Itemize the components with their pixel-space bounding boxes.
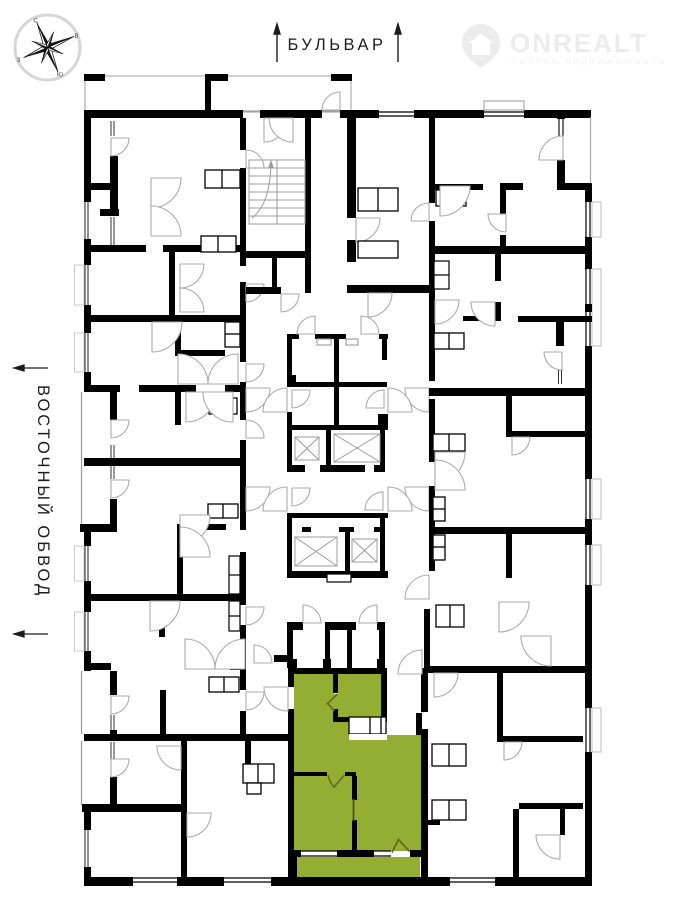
svg-text:ONREALT: ONREALT bbox=[510, 28, 648, 58]
svg-text:ВОСТОЧНЫЙ ОБВОД: ВОСТОЧНЫЙ ОБВОД bbox=[34, 385, 53, 598]
svg-text:БУЛЬВАР: БУЛЬВАР bbox=[287, 36, 386, 54]
svg-text:ПОРТАЛ НЕДВИЖИМОСТИ: ПОРТАЛ НЕДВИЖИМОСТИ bbox=[511, 57, 668, 66]
svg-text:С: С bbox=[33, 18, 38, 25]
svg-text:Ю: Ю bbox=[57, 72, 63, 79]
svg-text:В: В bbox=[74, 33, 78, 40]
svg-text:З: З bbox=[17, 57, 21, 64]
